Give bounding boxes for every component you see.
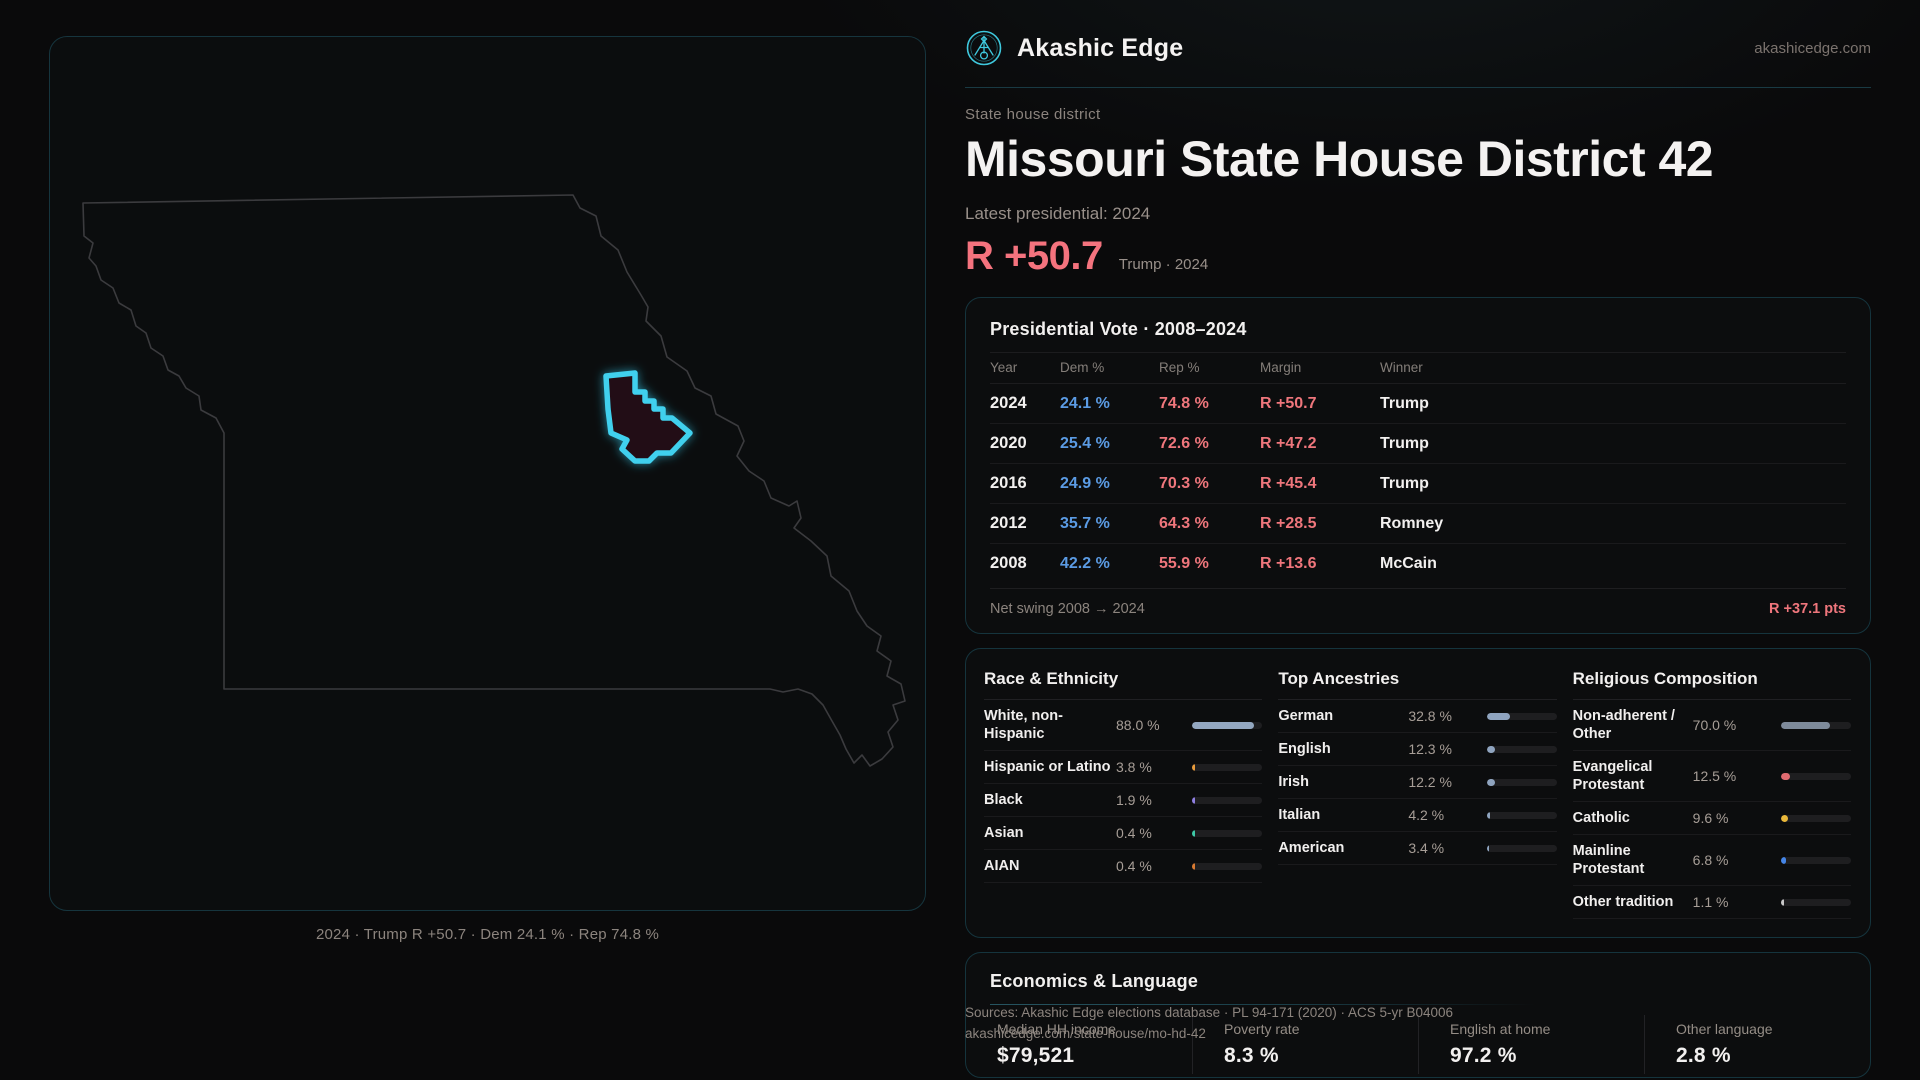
year-cell: 2016: [990, 474, 1060, 493]
stat-bar-track: [1192, 764, 1262, 771]
section-eyebrow: State house district: [965, 106, 1871, 123]
stat-bar-track: [1781, 815, 1851, 822]
stat-value: 6.8 %: [1693, 852, 1747, 868]
econ-stat-other-language: Other language 2.8 %: [1644, 1015, 1870, 1074]
margin-cell: R +13.6: [1260, 555, 1380, 573]
table-row: 2008 42.2 % 55.9 % R +13.6 McCain: [990, 544, 1846, 583]
stat-label: English: [1278, 740, 1408, 758]
winner-cell: McCain: [1380, 555, 1846, 573]
stat-label: Evangelical Protestant: [1573, 758, 1693, 794]
stat-bar-fill: [1487, 779, 1496, 786]
col-dem: Dem %: [1060, 360, 1159, 375]
stat-bar-fill: [1487, 812, 1490, 819]
demographics-panel: Race & Ethnicity White, non-Hispanic 88.…: [965, 648, 1871, 938]
economics-divider: [990, 1004, 1536, 1005]
stat-label: American: [1278, 839, 1408, 857]
stat-row: White, non-Hispanic 88.0 %: [984, 700, 1262, 751]
stat-label: AIAN: [984, 857, 1116, 875]
dem-cell: 25.4 %: [1060, 435, 1159, 453]
stat-value: 1.9 %: [1116, 792, 1170, 808]
econ-stat-value: 8.3 %: [1224, 1044, 1418, 1068]
table-row: 2024 24.1 % 74.8 % R +50.7 Trump: [990, 384, 1846, 424]
winner-cell: Trump: [1380, 395, 1846, 413]
econ-stat-poverty-rate: Poverty rate 8.3 %: [1192, 1015, 1418, 1074]
stat-bar-track: [1192, 830, 1262, 837]
stat-row: Asian 0.4 %: [984, 817, 1262, 850]
rep-cell: 74.8 %: [1159, 395, 1260, 413]
stat-row: Other tradition 1.1 %: [1573, 886, 1851, 919]
economics-stats-row: Median HH income $79,521 Poverty rate 8.…: [966, 1015, 1870, 1074]
stat-value: 12.3 %: [1408, 741, 1462, 757]
table-row: 2020 25.4 % 72.6 % R +47.2 Trump: [990, 424, 1846, 464]
col-winner: Winner: [1380, 360, 1846, 375]
stat-row: Italian 4.2 %: [1278, 799, 1556, 832]
stat-value: 32.8 %: [1408, 708, 1462, 724]
missouri-outline: [83, 195, 905, 766]
stat-bar-track: [1192, 797, 1262, 804]
stat-row: AIAN 0.4 %: [984, 850, 1262, 883]
stat-value: 12.5 %: [1693, 768, 1747, 784]
stat-bar-track: [1781, 722, 1851, 729]
stat-value: 4.2 %: [1408, 807, 1462, 823]
stat-label: White, non-Hispanic: [984, 707, 1116, 743]
stat-bar-fill: [1192, 863, 1195, 870]
latest-presidential-label: Latest presidential: 2024: [965, 204, 1871, 224]
stat-value: 88.0 %: [1116, 717, 1170, 733]
margin-cell: R +45.4: [1260, 475, 1380, 493]
stat-row: German 32.8 %: [1278, 700, 1556, 733]
district-map-panel: [49, 36, 926, 911]
missouri-map: [50, 37, 926, 911]
stat-row: Irish 12.2 %: [1278, 766, 1556, 799]
economics-panel: Economics & Language Median HH income $7…: [965, 952, 1871, 1078]
winner-cell: Romney: [1380, 515, 1846, 533]
rep-cell: 55.9 %: [1159, 555, 1260, 573]
stat-value: 9.6 %: [1693, 810, 1747, 826]
stat-bar-fill: [1781, 722, 1830, 729]
stat-row: Evangelical Protestant 12.5 %: [1573, 751, 1851, 802]
column-title: Top Ancestries: [1278, 669, 1556, 700]
stat-label: Non-adherent / Other: [1573, 707, 1693, 743]
site-header: Akashic Edge akashicedge.com: [965, 28, 1871, 68]
vote-panel-title: Presidential Vote · 2008–2024: [990, 319, 1846, 340]
net-swing-label: Net swing 2008 → 2024: [990, 601, 1145, 617]
stat-value: 0.4 %: [1116, 825, 1170, 841]
margin-cell: R +50.7: [1260, 395, 1380, 413]
stat-bar-fill: [1192, 722, 1254, 729]
presidential-vote-panel: Presidential Vote · 2008–2024 Year Dem %…: [965, 297, 1871, 634]
map-caption: 2024 · Trump R +50.7 · Dem 24.1 % · Rep …: [49, 926, 926, 943]
headline-margin: R +50.7 Trump · 2024: [965, 234, 1871, 279]
stat-bar-track: [1487, 812, 1557, 819]
religious-composition-column: Religious Composition Non-adherent / Oth…: [1573, 669, 1851, 923]
column-title: Religious Composition: [1573, 669, 1851, 700]
stat-bar-fill: [1192, 797, 1195, 804]
stat-value: 1.1 %: [1693, 894, 1747, 910]
race-ethnicity-column: Race & Ethnicity White, non-Hispanic 88.…: [984, 669, 1262, 923]
brand-name: Akashic Edge: [1017, 34, 1183, 63]
econ-stat-english-at-home: English at home 97.2 %: [1418, 1015, 1644, 1074]
margin-cell: R +28.5: [1260, 515, 1380, 533]
stat-label: Hispanic or Latino: [984, 758, 1116, 776]
stat-bar-track: [1487, 845, 1557, 852]
stat-bar-fill: [1487, 845, 1490, 852]
table-row: 2016 24.9 % 70.3 % R +45.4 Trump: [990, 464, 1846, 504]
econ-stat-value: $79,521: [997, 1044, 1192, 1068]
stat-value: 3.8 %: [1116, 759, 1170, 775]
stat-label: Asian: [984, 824, 1116, 842]
stat-bar-fill: [1487, 746, 1496, 753]
stat-bar-fill: [1781, 899, 1784, 906]
stat-value: 0.4 %: [1116, 858, 1170, 874]
vote-table-header: Year Dem % Rep % Margin Winner: [990, 352, 1846, 384]
econ-stat-value: 97.2 %: [1450, 1044, 1644, 1068]
margin-context: Trump · 2024: [1119, 256, 1208, 273]
econ-stat-label: Other language: [1676, 1021, 1870, 1037]
stat-bar-track: [1487, 713, 1557, 720]
stat-row: Catholic 9.6 %: [1573, 802, 1851, 835]
table-row: 2012 35.7 % 64.3 % R +28.5 Romney: [990, 504, 1846, 544]
stat-bar-fill: [1781, 857, 1786, 864]
econ-stat-label: Median HH income: [997, 1021, 1192, 1037]
stat-bar-track: [1192, 863, 1262, 870]
stat-bar-fill: [1781, 773, 1790, 780]
year-cell: 2020: [990, 434, 1060, 453]
economics-panel-title: Economics & Language: [990, 971, 1870, 992]
stat-bar-track: [1781, 773, 1851, 780]
econ-stat-label: English at home: [1450, 1021, 1644, 1037]
col-year: Year: [990, 360, 1060, 375]
stat-label: Irish: [1278, 773, 1408, 791]
winner-cell: Trump: [1380, 475, 1846, 493]
dem-cell: 42.2 %: [1060, 555, 1159, 573]
stat-bar-track: [1487, 746, 1557, 753]
winner-cell: Trump: [1380, 435, 1846, 453]
stat-bar-fill: [1781, 815, 1788, 822]
dem-cell: 35.7 %: [1060, 515, 1159, 533]
stat-label: Other tradition: [1573, 893, 1693, 911]
rep-cell: 72.6 %: [1159, 435, 1260, 453]
margin-cell: R +47.2: [1260, 435, 1380, 453]
stat-label: German: [1278, 707, 1408, 725]
stat-label: Italian: [1278, 806, 1408, 824]
stat-row: American 3.4 %: [1278, 832, 1556, 865]
stat-label: Black: [984, 791, 1116, 809]
column-title: Race & Ethnicity: [984, 669, 1262, 700]
rep-cell: 64.3 %: [1159, 515, 1260, 533]
page-title: Missouri State House District 42: [965, 130, 1871, 188]
stat-bar-fill: [1487, 713, 1510, 720]
stat-row: Mainline Protestant 6.8 %: [1573, 835, 1851, 886]
stat-value: 3.4 %: [1408, 840, 1462, 856]
stat-row: Non-adherent / Other 70.0 %: [1573, 700, 1851, 751]
stat-value: 70.0 %: [1693, 717, 1747, 733]
econ-stat-value: 2.8 %: [1676, 1044, 1870, 1068]
col-margin: Margin: [1260, 360, 1380, 375]
econ-stat-label: Poverty rate: [1224, 1021, 1418, 1037]
stat-label: Mainline Protestant: [1573, 842, 1693, 878]
econ-stat-median-income: Median HH income $79,521: [966, 1015, 1192, 1074]
akashic-edge-logo-icon: [965, 29, 1003, 67]
margin-value: R +50.7: [965, 234, 1103, 279]
stat-label: Catholic: [1573, 809, 1693, 827]
year-cell: 2008: [990, 554, 1060, 573]
stat-bar-track: [1487, 779, 1557, 786]
rep-cell: 70.3 %: [1159, 475, 1260, 493]
dem-cell: 24.9 %: [1060, 475, 1159, 493]
net-swing-row: Net swing 2008 → 2024 R +37.1 pts: [990, 588, 1846, 629]
col-rep: Rep %: [1159, 360, 1260, 375]
stat-row: Hispanic or Latino 3.8 %: [984, 751, 1262, 784]
dem-cell: 24.1 %: [1060, 395, 1159, 413]
stat-value: 12.2 %: [1408, 774, 1462, 790]
district-42-shape[interactable]: [606, 373, 690, 461]
stat-row: English 12.3 %: [1278, 733, 1556, 766]
top-ancestries-column: Top Ancestries German 32.8 % English 12.…: [1278, 669, 1556, 923]
year-cell: 2012: [990, 514, 1060, 533]
stat-row: Black 1.9 %: [984, 784, 1262, 817]
stat-bar-fill: [1192, 830, 1195, 837]
net-swing-value: R +37.1 pts: [1769, 601, 1846, 617]
stat-bar-fill: [1192, 764, 1195, 771]
header-divider: [965, 87, 1871, 88]
stat-bar-track: [1781, 857, 1851, 864]
year-cell: 2024: [990, 394, 1060, 413]
stat-bar-track: [1192, 722, 1262, 729]
stat-bar-track: [1781, 899, 1851, 906]
site-domain-link[interactable]: akashicedge.com: [1754, 40, 1871, 57]
